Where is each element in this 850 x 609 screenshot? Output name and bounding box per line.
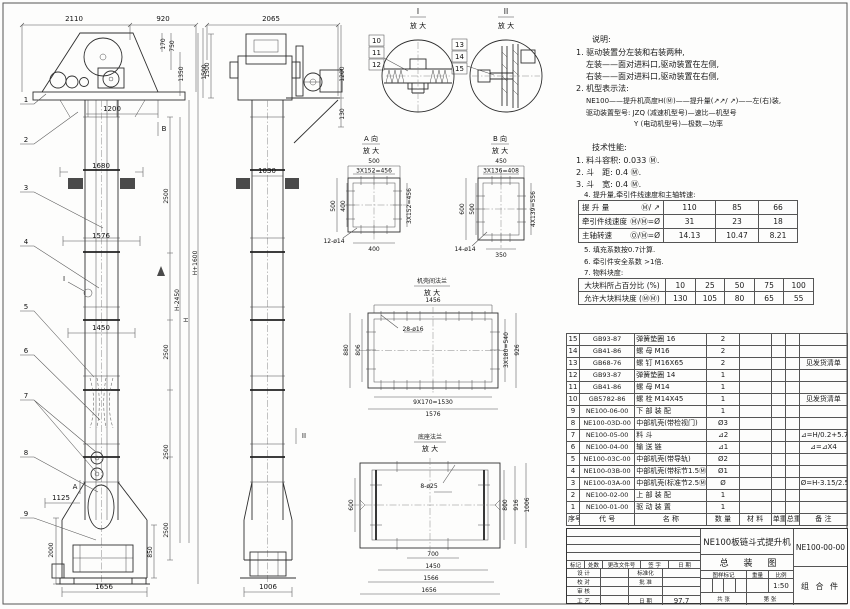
detail-b-view: B 向 放 大 450 3X136=408 600 500 4X139=556 … [454, 134, 537, 259]
drawing-sheet: 2110 920 1200 B 170 750 1350 1500 1680 1… [0, 0, 850, 609]
stamp-header: 比例 [769, 571, 794, 579]
tech-line: 6. 牵引件安全系数 >1倍. [584, 257, 664, 267]
detail-a-dim-left2: 400 [340, 200, 347, 212]
bom-header-cell: 数 量 [707, 514, 739, 526]
bom-row: 8NE100-03D-00中部机壳(带检视门)Ø3 [567, 418, 848, 430]
bom-row: 14GB41-86螺 母 M162 [567, 346, 848, 358]
sign-label: 标准化 [629, 569, 663, 578]
detail-b-holes: 14-ø14 [454, 246, 475, 253]
leader-15: 15 [455, 65, 464, 73]
base-title: 底座法兰 [418, 433, 442, 441]
dim-2110: 2110 [65, 15, 83, 23]
dim-130: 130 [339, 108, 346, 120]
sign-value [663, 578, 701, 587]
bom-header-cell: 名 称 [635, 514, 707, 526]
detail-ii-view: II 放 大 [470, 7, 542, 112]
base-sub: 放 大 [422, 444, 438, 453]
leader-13: 13 [455, 41, 464, 49]
dim-1500-side: 1500 [204, 62, 211, 77]
stamp-header: 图样标记 [701, 571, 747, 579]
flange-dim-left: 880 [343, 344, 350, 356]
sign-label: 设 计 [567, 569, 601, 578]
detail-a-dim-left: 500 [330, 200, 337, 212]
note-line: 驱动装置型号: JZQ (减速机型号)—速比—机型号 [586, 108, 737, 118]
base-dim-bottom4: 1656 [421, 587, 436, 594]
detail-b-dim-left: 600 [459, 203, 466, 215]
dim-1125: 1125 [52, 494, 70, 502]
detail-b-dim-top2: 3X136=408 [483, 168, 519, 175]
detail-b-dim-top: 450 [495, 158, 507, 165]
table-row: 大块料所占百分比 (%) 10255075100 [579, 279, 814, 292]
bom-row: 9NE100-06-00下 部 装 配1 [567, 406, 848, 418]
note-line: NE100——提升机高度H(Ⓜ)——提升量(↗↗/ ↗)——左(右)装, [586, 96, 781, 106]
detail-b-sub: 放 大 [492, 146, 508, 155]
dim-1450: 1450 [92, 324, 110, 332]
sheet-total: 共 张 [701, 593, 747, 605]
rev-header: 签 字 [641, 561, 669, 569]
leader-11: 11 [372, 49, 381, 57]
dim-920: 920 [156, 15, 169, 23]
note-line: 左装——面对进料口,驱动装置在左侧, [586, 59, 719, 70]
leader-14: 14 [455, 53, 464, 61]
base-holes: 8-ø25 [420, 483, 437, 490]
flange-dim-top: 1456 [425, 297, 440, 304]
bom-row: 11GB41-86螺 母 M141 [567, 382, 848, 394]
base-dim-bottom2: 1450 [425, 563, 440, 570]
detail-ii-sub: 放 大 [498, 21, 514, 30]
leader-9: 9 [24, 510, 28, 518]
base-dim-left: 600 [348, 499, 355, 511]
leader-4: 4 [24, 238, 29, 246]
lump-size-table: 大块料所占百分比 (%) 10255075100 允许大块料块度 (ⓂⓂ) 13… [578, 278, 814, 305]
detail-a-dim-bottom: 400 [368, 246, 380, 253]
drawing-number: NE100-00-00 [794, 529, 847, 567]
marker-b: B [162, 125, 167, 133]
base-dim-right3: 1006 [524, 497, 531, 512]
notes-heading: 说明: [592, 34, 611, 45]
chain-direction-arrow [157, 266, 165, 276]
detail-b-title: B 向 [493, 134, 507, 143]
bom-header-cell: 总重 [785, 514, 799, 526]
note-line: 右装——面对进料口,驱动装置在右侧, [586, 71, 719, 82]
sheet-number: 第 张 [747, 593, 794, 605]
base-dim-right: 800 [502, 499, 509, 511]
rev-header: 处数 [585, 561, 603, 569]
flange-dim-right2: 926 [514, 344, 521, 356]
bom-row: 3NE100-03A-00中部机壳(标准节2.5Ⓜ)ØØ=H-3.15/2.5 [567, 478, 848, 490]
sign-label: 日 期 [629, 596, 663, 605]
sign-label: 校 对 [567, 578, 601, 587]
bom-row: 13GB68-76螺 钉 M16X652见发货清单 [567, 358, 848, 370]
dim-2065: 2065 [262, 15, 280, 23]
marker-ii: II [302, 432, 306, 440]
title-block: 标记 处数 更改文件号 签 字 日 期 设 计 标准化 校 对 批 准 审 核 … [566, 528, 848, 604]
leader-3: 3 [24, 184, 28, 192]
tech-line: 5. 填充系数按0.7计算. [584, 245, 655, 255]
detail-a-dim-right: 3X152=456 [406, 188, 413, 224]
leader-12: 12 [372, 61, 381, 69]
leader-10: 10 [372, 37, 381, 45]
bom-row: 15GB93-87弹簧垫圈 162 [567, 334, 848, 346]
stamp-header: 重量 [747, 571, 769, 579]
table-row: 牵引件线速度Ⓜ/Ⓜ=Ø 312318 [579, 215, 798, 229]
base-dim-right2: 916 [513, 499, 520, 511]
sign-label: 工 艺 [567, 596, 601, 605]
base-dim-bottom: 700 [427, 551, 439, 558]
note-line: Y (电动机型号)—极数—功率 [634, 119, 723, 129]
dim-2500-3: 2500 [163, 444, 170, 459]
dim-h-plus-1600: H+1600 [192, 250, 199, 275]
detail-b-dim-right: 4X139=556 [530, 191, 537, 227]
rev-header: 日 期 [669, 561, 701, 569]
dim-2000: 2000 [48, 542, 55, 557]
bom-header-cell: 材 料 [739, 514, 771, 526]
detail-i-sub: 放 大 [410, 21, 426, 30]
detail-a-view: A 向 放 大 500 3X152=456 500 400 3X152=456 … [323, 134, 413, 253]
tech-line: 7. 物料块度: [584, 268, 623, 278]
bom-header-cell: 代 号 [580, 514, 635, 526]
flange-dim-left2: 806 [355, 344, 362, 356]
bom-row: 4NE100-03B-00中部机壳(带标节1.5Ⓜ,1Ⓜ)Ø1 [567, 466, 848, 478]
leader-6: 6 [24, 347, 29, 355]
dim-h: H [183, 318, 190, 323]
bom-row: 5NE100-03C-00中部机壳(带导轨)Ø2 [567, 454, 848, 466]
dim-1200-side: 1200 [339, 66, 346, 81]
note-line: 2. 机型表示法: [576, 83, 629, 94]
tech-line: 1. 料斗容积: 0.033 Ⓜ. [576, 155, 659, 166]
flange-title: 机壳间法兰 [417, 277, 447, 285]
leader-7: 7 [24, 392, 28, 400]
dim-1656-front: 1656 [95, 583, 113, 591]
sign-value [663, 569, 701, 578]
bom-header-cell: 序号 [567, 514, 580, 526]
sign-label: 审 核 [567, 587, 601, 596]
bom-header-cell: 备 注 [799, 514, 847, 526]
dim-1030: 1030 [258, 167, 276, 175]
flange-dim-bottom: 9X170=1530 [413, 399, 453, 406]
table-row: 主轴转速Ⓞ/Ⓜ=Ø 14.1310.478.21 [579, 229, 798, 243]
leader-2: 2 [24, 136, 28, 144]
bom-row: 2NE100-02-00上 部 装 配1 [567, 490, 848, 502]
tech-line: 3. 斗 宽: 0.4 Ⓜ. [576, 179, 641, 190]
dim-h-2450: H-2450 [174, 289, 181, 311]
tech-line: 2. 斗 距: 0.4 Ⓜ. [576, 167, 641, 178]
dim-2500-1: 2500 [163, 188, 170, 203]
sign-label [629, 587, 663, 596]
dim-170: 170 [160, 38, 167, 50]
table-row: 允许大块料块度 (ⓂⓂ) 130105806555 [579, 292, 814, 305]
sign-label: 批 准 [629, 578, 663, 587]
sign-date: 97.7 [663, 596, 701, 605]
dim-850: 850 [147, 546, 154, 558]
detail-a-holes: 12-ø14 [323, 238, 344, 245]
sign-value [663, 587, 701, 596]
base-flange-detail: 底座法兰 放 大 8-ø25 600 800 916 1006 700 1450… [348, 433, 531, 594]
marker-a: A [73, 483, 78, 491]
bom-row: 6NE100-04-00输 送 链⊿1⊿=⊿X4 [567, 442, 848, 454]
rev-header: 标记 [567, 561, 585, 569]
casing-flange-detail: 机壳间法兰 放 大 1456 880 806 3X180=540 926 28-… [343, 277, 521, 418]
detail-b-dim-bottom: 350 [495, 252, 507, 259]
rev-header: 更改文件号 [603, 561, 641, 569]
bom-table: 15GB93-87弹簧垫圈 162 14GB41-86螺 母 M162 13GB… [566, 333, 848, 526]
flange-dim-bottom2: 1576 [425, 411, 440, 418]
dim-750: 750 [169, 40, 176, 52]
detail-a-dim-top: 500 [368, 158, 380, 165]
bom-row: 1NE100-01-00驱 动 装 置1 [567, 502, 848, 514]
detail-ii-title: II [504, 7, 508, 16]
dim-1680: 1680 [92, 162, 110, 170]
base-dim-bottom3: 1566 [423, 575, 438, 582]
tech-line: 4. 提升量,牵引件线速度和主轴转速: [584, 190, 696, 200]
bom-row: 7NE100-05-00料 斗⊿2⊿=H/0.2+5.75 [567, 430, 848, 442]
dim-1350: 1350 [178, 66, 185, 81]
bom-header-cell: 单重 [771, 514, 785, 526]
front-elevation-view: 2110 920 1200 B 170 750 1350 1500 1680 1… [20, 15, 208, 597]
leader-1: 1 [24, 96, 28, 104]
detail-a-dim-top2: 3X152=456 [356, 168, 392, 175]
dim-1006-side: 1006 [259, 583, 277, 591]
drawing-title: NE100板链斗式提升机 [701, 529, 794, 555]
part-type: 组 合 件 [794, 567, 847, 605]
note-line: 1. 驱动装置分左装和右装两种, [576, 47, 685, 58]
flange-sub: 放 大 [424, 288, 440, 297]
table-row: 提 升 量Ⓜ/ ↗ 1108566 [579, 201, 798, 215]
bom-row: 12GB93-87弹簧垫圈 141 [567, 370, 848, 382]
detail-i-view: I 放 大 [382, 7, 454, 112]
speed-table: 提 升 量Ⓜ/ ↗ 1108566 牵引件线速度Ⓜ/Ⓜ=Ø 312318 主轴转… [578, 200, 798, 243]
bom-row: 10GB5782-86螺 栓 M14X451见发货清单 [567, 394, 848, 406]
detail-b-dim-left2: 500 [469, 203, 476, 215]
detail-i-title: I [417, 7, 419, 16]
marker-i: I [63, 275, 65, 283]
leader-8: 8 [24, 449, 28, 457]
drawing-subtitle: 总 装 图 [701, 555, 794, 571]
leader-5: 5 [24, 303, 28, 311]
drawing-scale: 1:50 [769, 579, 794, 593]
detail-a-sub: 放 大 [363, 146, 379, 155]
flange-dim-right: 3X180=540 [503, 332, 510, 368]
detail-a-title: A 向 [364, 134, 378, 143]
dim-2500-4: 2500 [163, 522, 170, 537]
tech-heading: 技术性能: [592, 142, 627, 153]
dim-2500-2: 2500 [163, 344, 170, 359]
dim-1576-front: 1576 [92, 232, 110, 240]
bom-header-row: 序号代 号名 称数 量材 料单重总重备 注 [567, 514, 848, 526]
